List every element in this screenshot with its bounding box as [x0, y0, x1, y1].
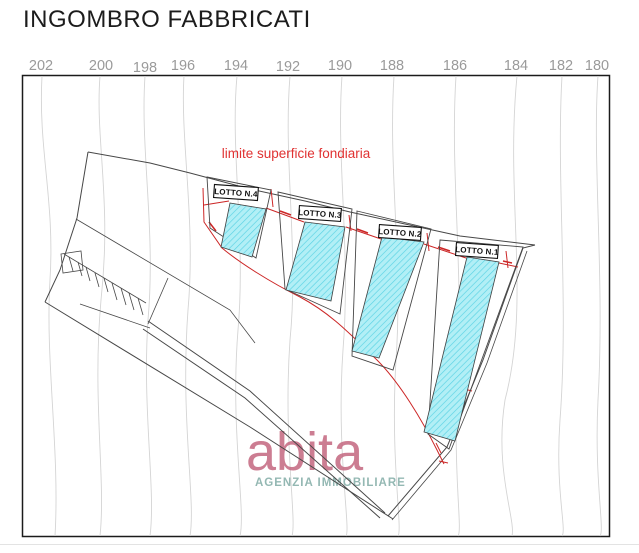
elevation-label: 182	[549, 58, 573, 74]
lot-4-building	[221, 203, 266, 257]
elevation-label: 186	[443, 58, 467, 74]
lot-2-building	[352, 237, 424, 358]
elevation-label: 200	[89, 58, 113, 74]
elevation-labels: 202 200 198 196 194 192 190 188 186 184 …	[29, 58, 609, 76]
lot-3-label: LOTTO N.3	[298, 205, 343, 221]
plan-page: INGOMBRO FABBRICATI 202 200 198 196 194 …	[0, 0, 639, 553]
red-boundary-label: limite superficie fondiaria	[222, 146, 371, 161]
elevation-label: 188	[380, 58, 404, 74]
elevation-label: 180	[585, 58, 609, 74]
parking-bay-lines	[69, 257, 143, 315]
lot-4-label: LOTTO N.4	[214, 184, 259, 200]
elevation-label: 184	[504, 58, 528, 74]
lot-4: LOTTO N.4	[207, 177, 271, 258]
lot-2: LOTTO N.2	[352, 211, 431, 370]
lot-2-label: LOTTO N.2	[378, 224, 423, 240]
lot-1: LOTTO N.1	[424, 240, 523, 449]
lot-3-building	[286, 222, 345, 301]
elevation-label: 196	[171, 58, 195, 74]
lot-1-building	[424, 257, 499, 441]
lot-1-label: LOTTO N.1	[455, 242, 500, 258]
parking-area	[61, 251, 168, 328]
elevation-label: 198	[133, 60, 157, 76]
lots: LOTTO N.4 LOTTO N.3 LOTTO N.2	[207, 177, 523, 449]
site-plan-drawing: 202 200 198 196 194 192 190 188 186 184 …	[0, 0, 639, 553]
elevation-label: 202	[29, 58, 53, 74]
elevation-label: 190	[328, 58, 352, 74]
elevation-label: 194	[224, 58, 248, 74]
elevation-label: 192	[276, 59, 300, 75]
watermark: abita AGENZIA IMMOBILIARE	[246, 422, 406, 489]
lot-3: LOTTO N.3	[278, 192, 352, 314]
